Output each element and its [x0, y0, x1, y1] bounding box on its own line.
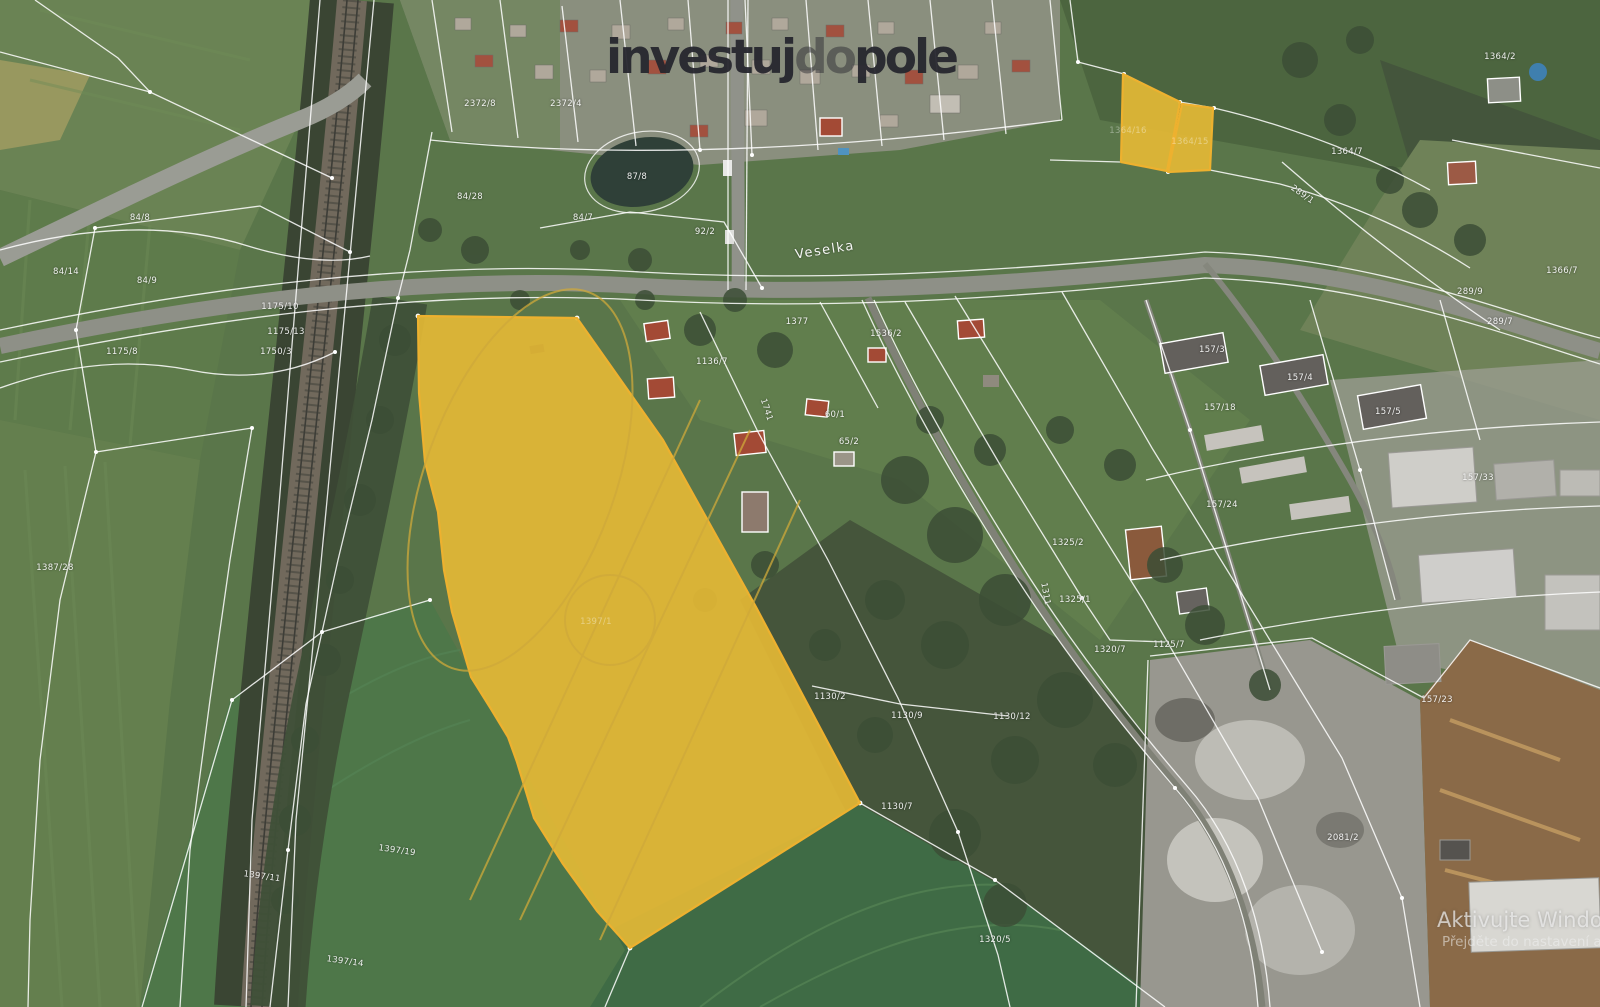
parcel-label: 1536/2	[870, 330, 902, 339]
parcel-label: 1311	[1039, 582, 1051, 606]
parcel-label: 1364/16	[1109, 127, 1146, 136]
parcel-label: 157/3	[1199, 346, 1225, 355]
parcel-label: 84/28	[457, 193, 483, 202]
parcel-label: 84/9	[137, 277, 157, 286]
windows-activation-watermark-title: Aktivujte Windows	[1437, 908, 1600, 932]
parcel-label: 2372/4	[550, 100, 582, 109]
parcel-label: 157/5	[1375, 408, 1401, 417]
logo-text-do: do	[794, 30, 854, 85]
parcel-label: 1130/2	[814, 693, 846, 702]
parcel-label: 65/2	[839, 438, 859, 447]
parcel-label: 1364/15	[1171, 138, 1208, 147]
parcel-label: 1175/10	[261, 303, 298, 312]
parcel-label: 84/7	[573, 214, 593, 223]
parcel-label: 1175/8	[106, 348, 138, 357]
parcel-label: 1175/13	[267, 328, 304, 337]
parcel-label: 1364/7	[1331, 148, 1363, 157]
parcel-label: 1397/19	[378, 844, 416, 858]
parcel-label: 1130/7	[881, 803, 913, 812]
parcel-label: 1325/1	[1059, 596, 1091, 605]
parcel-label: 289/1	[1289, 184, 1315, 206]
parcel-label: 1130/9	[891, 712, 923, 721]
parcel-label: 1325/2	[1052, 539, 1084, 548]
parcel-label: 1320/7	[1094, 646, 1126, 655]
parcel-label: 2081/2	[1327, 834, 1359, 843]
parcel-label: 60/1	[825, 411, 845, 420]
parcel-label: 1750/3	[260, 348, 292, 357]
windows-activation-watermark-subtitle: Přejděte do nastavení a	[1442, 934, 1600, 950]
parcel-label: 87/8	[627, 173, 647, 182]
parcel-label: 289/9	[1457, 288, 1483, 297]
investujdopole-logo: investujdopole	[606, 30, 956, 85]
parcel-label: 84/8	[130, 214, 150, 223]
parcel-label: 1397/11	[243, 870, 281, 884]
logo-text-investuj: investuj	[606, 30, 794, 85]
parcel-label: 84/14	[53, 268, 79, 277]
parcel-label: 157/23	[1421, 696, 1453, 705]
parcel-label: 157/4	[1287, 374, 1313, 383]
parcel-label: 157/24	[1206, 501, 1238, 510]
parcel-label: 1130/12	[993, 713, 1030, 722]
parcel-label: 157/33	[1462, 474, 1494, 483]
parcel-label: 92/2	[695, 228, 715, 237]
parcel-label: 1320/5	[979, 936, 1011, 945]
parcel-label: 1377	[786, 318, 809, 327]
parcel-label: 1136/7	[696, 358, 728, 367]
parcel-label: 1364/2	[1484, 53, 1516, 62]
parcel-label: 2372/8	[464, 100, 496, 109]
logo-text-pole: pole	[854, 30, 956, 85]
parcel-label: 1387/28	[36, 564, 73, 573]
parcel-label: 1397/1	[580, 618, 612, 627]
parcel-labels-layer: 84/884/984/141175/101175/131750/31175/81…	[0, 0, 1600, 1007]
parcel-label: 157/18	[1204, 404, 1236, 413]
parcel-label: 1366/7	[1546, 267, 1578, 276]
parcel-label: 1397/14	[326, 955, 364, 969]
satellite-cadastral-map[interactable]: 84/884/984/141175/101175/131750/31175/81…	[0, 0, 1600, 1007]
parcel-label: 1125/7	[1153, 641, 1185, 650]
parcel-label: 1741	[758, 398, 773, 422]
parcel-label: 289/7	[1487, 318, 1513, 327]
